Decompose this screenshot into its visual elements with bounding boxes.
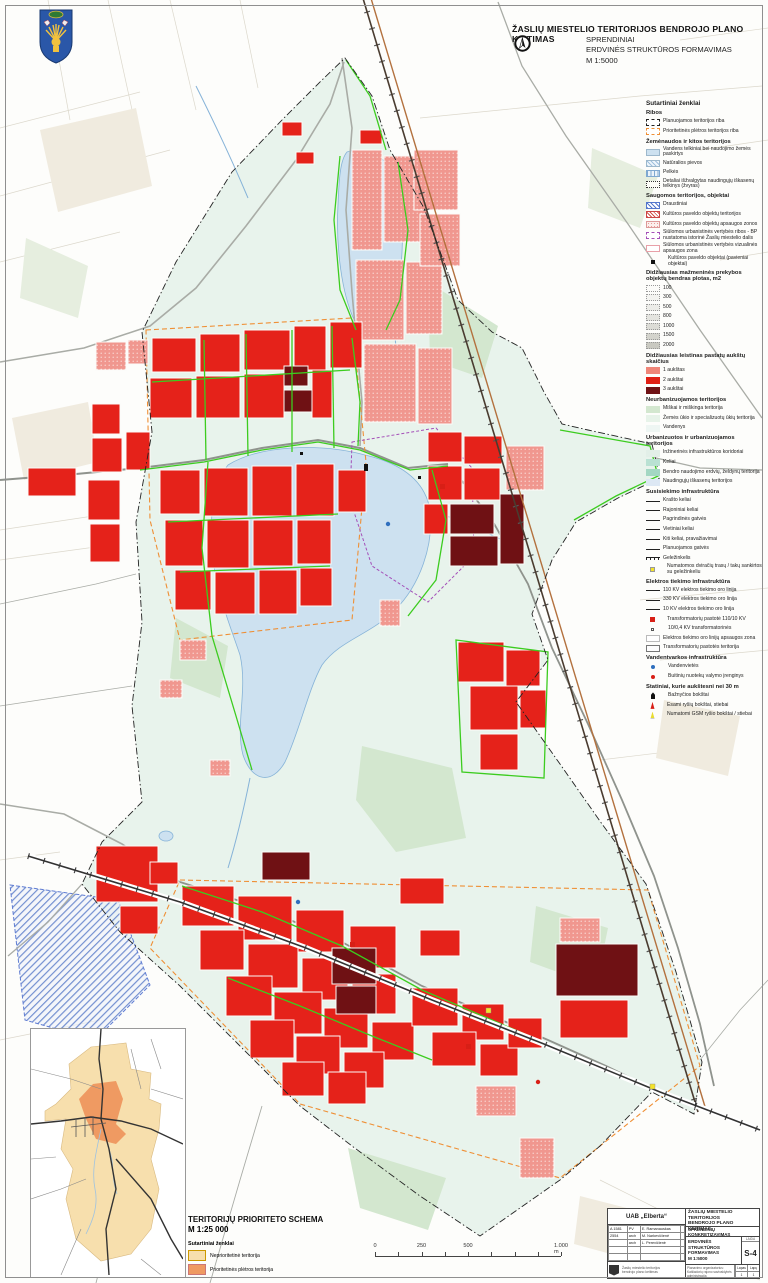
m2 g1-swatch — [646, 285, 660, 292]
legend-item-label: Kiti keliai, pravažiavimai — [663, 537, 762, 543]
inset-map-canvas — [31, 1029, 183, 1275]
legend-item-label: Prioritetinės plėtros teritorijos riba — [663, 129, 762, 135]
legend-item-label: Numatomos dviračių trasų / takų sankirto… — [667, 564, 762, 575]
zasliai-coat-of-arms — [38, 8, 74, 64]
nonpriority-swatch — [188, 1250, 206, 1261]
legend-item: Siūlomos urbanistinės vertybės ribos - B… — [646, 230, 762, 241]
legend-item-label: 1 aukštas — [663, 368, 762, 374]
sq-black-swatch — [651, 260, 655, 264]
legend-section-title: Didžiausias leistinas pastatų aukštų ska… — [646, 353, 762, 365]
line line-local-swatch — [646, 529, 660, 530]
outline-pink-swatch — [646, 245, 660, 252]
legend-item-label: Transformatorių pastotės teritorija — [663, 645, 762, 651]
dash-black-swatch — [646, 119, 660, 126]
subtitle-line-1: SPRENDINIAI — [586, 35, 732, 45]
legend-item-label: Bendro naudojimo erdvių, želdynų teritor… — [663, 470, 762, 476]
legend-item: Draustiniai — [646, 201, 762, 209]
staff-row: 2554archM. Narkevičienė — [609, 1233, 685, 1240]
legend-item-label: Bažnyčios bokštai — [668, 693, 762, 699]
legend-item: Pelkės — [646, 169, 762, 177]
legend-item: 2000 — [646, 342, 762, 350]
legend-item: 10 KV elektros tiekimo oro linija — [646, 606, 762, 614]
drawing-name: ERDVINĖS STRUKTŪROS FORMAVIMAS M 1:5000 — [686, 1237, 741, 1264]
fill-minerals-swatch — [646, 479, 660, 486]
m2 g5-swatch — [646, 323, 660, 330]
organizer: Planavimo organizatorius: Kaišiadorių ra… — [686, 1265, 735, 1278]
legend-title: Sutartiniai ženklai — [646, 100, 762, 107]
scale-bar: 02505001.000 m — [375, 1243, 561, 1257]
inset-legend-label: Neprioritetinė teritorija — [210, 1253, 260, 1259]
subtitle-line-3: M 1:5000 — [586, 56, 732, 66]
legend-item: Rajoniniai keliai — [646, 507, 762, 515]
legend-item-label: Kultūros paveldo objektų apsaugos zonos — [663, 222, 762, 228]
legend-item: Esami ryšių bokštai, stiebai — [646, 701, 762, 709]
sheet-number: S-4 — [742, 1242, 759, 1264]
inset-legend-title: Sutartiniai ženklai — [188, 1241, 338, 1247]
legend-item-label: Siūlomos urbanistinės vertybės vizualinė… — [663, 243, 762, 254]
scale-label: 0 — [373, 1243, 376, 1249]
legend-item-label: Rajoniniai keliai — [663, 508, 762, 514]
sq-yellow-swatch — [650, 567, 655, 572]
fill-water-swatch — [646, 149, 660, 156]
line line-main-swatch — [646, 520, 660, 521]
ic-church-swatch — [651, 692, 655, 699]
legend-item: 330 KV elektros tiekimo oro linija — [646, 596, 762, 604]
north-arrow-icon — [514, 35, 531, 52]
legend: Sutartiniai ženklai RibosPlanuojamos ter… — [646, 100, 762, 721]
dot-outline-swatch — [646, 181, 660, 188]
staff-row: archL. Perevičienė — [609, 1240, 685, 1247]
legend-item-label: 800 — [663, 314, 762, 320]
legend-item: Inžinerinės infrastruktūros koridoriai — [646, 449, 762, 457]
red-3-swatch — [646, 387, 660, 394]
inset-legend-item: Prioritetinės plėtros teritorija — [188, 1264, 338, 1275]
legend-item: 800 — [646, 313, 762, 321]
legend-item: Pagrindinės gatvės — [646, 516, 762, 524]
legend-item-label: Pagrindinės gatvės — [663, 517, 762, 523]
hatch-blue-swatch — [646, 202, 660, 209]
legend-item-label: 1000 — [663, 324, 762, 330]
legend-item: Buitinių nuotekų valymo įrenginys — [646, 673, 762, 681]
zone-outline-swatch — [646, 645, 660, 652]
legend-item: Detaliai išžvalgytas naudingųjų iškasenų… — [646, 179, 762, 190]
legend-section-title: Statiniai, kurie aukštesni nei 30 m — [646, 684, 762, 690]
fill-roads-swatch — [646, 459, 660, 466]
inset-legend-item: Neprioritetinė teritorija — [188, 1250, 338, 1261]
legend-item-label: 2000 — [663, 343, 762, 349]
wastewater-symbol — [536, 1080, 540, 1084]
legend-item-label: Draustiniai — [663, 202, 762, 208]
legend-item: Elektros tiekimo oro linijų apsaugos zon… — [646, 635, 762, 643]
green-oval — [49, 11, 63, 18]
legend-item-label: Numatomi GSM ryšio bokštai / stiebai — [667, 712, 762, 718]
line line-110-swatch — [646, 590, 660, 591]
legend-item-label: 1500 — [663, 333, 762, 339]
fill-forest-swatch — [646, 406, 660, 413]
staff-row — [609, 1247, 685, 1254]
legend-item: Planuojamos gatvės — [646, 545, 762, 553]
hatch-blue-lt-swatch — [646, 160, 660, 167]
fill-waterpale-swatch — [646, 425, 660, 432]
legend-item: Natūralios pievos — [646, 160, 762, 168]
legend-item-label: Vandens telkiniai bei naudojimo žemės pa… — [663, 147, 762, 158]
legend-item-label: Pelkės — [663, 170, 762, 176]
legend-item: Vandenvietės — [646, 663, 762, 671]
legend-item-label: Vietiniai keliai — [663, 527, 762, 533]
line line-planned-swatch — [646, 549, 660, 550]
legend-item: Numatomos dviračių trasų / takų sankirto… — [646, 564, 762, 575]
legend-item: Transformatorių pastotė 110/10 KV — [646, 615, 762, 623]
legend-item: Miškai ir miškinga teritorija — [646, 405, 762, 413]
header: ŽASLIŲ MIESTELIO TERITORIJOS BENDROJO PL… — [512, 24, 762, 44]
legend-item: 1500 — [646, 332, 762, 340]
legend-item-label: 110 KV elektros tiekimo oro linija — [663, 588, 762, 594]
page-cell: 1 — [735, 1272, 747, 1279]
legend-section-title: Vandentvarkos infrastruktūra — [646, 655, 762, 661]
legend-item-label: 500 — [663, 305, 762, 311]
footer-line-2: bendrojo plano keitimas — [622, 1270, 660, 1274]
legend-item-label: Transformatorių pastotė 110/10 KV — [667, 617, 762, 623]
legend-section-title: Žemėnaudos ir kitos teritorijos — [646, 139, 762, 145]
legend-item: Žemės ūkio ir specializuotų ūkių teritor… — [646, 415, 762, 423]
legend-item: Keliai — [646, 459, 762, 467]
legend-item-label: Siūlomos urbanistinės vertybės ribos - B… — [663, 230, 762, 241]
ic-tower-red-swatch — [650, 702, 655, 709]
legend-section-title: Neurbanizuojamos teritorijos — [646, 397, 762, 403]
legend-item-label: Vandenvietės — [668, 664, 762, 670]
legend-item: 10/0,4 KV transformatorinės — [646, 625, 762, 633]
hatch-red-swatch — [646, 211, 660, 218]
legend-item: 300 — [646, 294, 762, 302]
legend-item-label: Kultūros paveldo objektų teritorijos — [663, 212, 762, 218]
project-stage: SPRENDINIŲ KONKRETIZAVIMAS — [686, 1227, 759, 1237]
line line-330-swatch — [646, 600, 660, 601]
company-name: UAB „Elberta“ — [608, 1209, 685, 1225]
legend-item-label: 330 KV elektros tiekimo oro linija — [663, 597, 762, 603]
title-block-footer: Žaslių miestelio teritorijos bendrojo pl… — [608, 1262, 685, 1278]
legend-section-title: Saugomos teritorijos, objektai — [646, 193, 762, 199]
page-counter: LapasLapų11 — [735, 1265, 759, 1278]
legend-item: Bendro naudojimo erdvių, želdynų teritor… — [646, 469, 762, 477]
project-line-1: ŽASLIŲ MIESTELIO TERITORIJOS — [688, 1210, 757, 1221]
legend-item: Naudingųjų iškasenų teritorijos — [646, 478, 762, 486]
m2 g2-swatch — [646, 294, 660, 301]
drawing-line-1: ERDVINĖS STRUKTŪROS — [688, 1239, 739, 1250]
fill-agri-swatch — [646, 415, 660, 422]
legend-item-label: Kultūros paveldo objektai (pavieniai obj… — [668, 256, 762, 267]
line-rail-swatch — [646, 557, 660, 560]
map-sheet: { "header": { "title": "ŽASLIŲ MIESTELIO… — [0, 0, 768, 1283]
sq-small-swatch — [651, 628, 654, 631]
scale-label: 250 — [417, 1243, 426, 1249]
legend-item-label: Planuojamos teritorijos riba — [663, 119, 762, 125]
legend-item: Planuojamos teritorijos riba — [646, 118, 762, 126]
legend-body: RibosPlanuojamos teritorijos ribaPriorit… — [646, 110, 762, 719]
legend-item-label: 2 aukštai — [663, 378, 762, 384]
fill-greens-swatch — [646, 469, 660, 476]
sq-red-swatch — [650, 617, 655, 622]
staff-row: A 1581PVE. Ramanauskas — [609, 1226, 685, 1233]
zone-blank-swatch — [646, 635, 660, 642]
staff-row — [609, 1254, 685, 1261]
project-name: ŽASLIŲ MIESTELIO TERITORIJOS BENDROJO PL… — [686, 1209, 759, 1227]
legend-item-label: Žemės ūkio ir specializuotų ūkių teritor… — [663, 416, 762, 422]
legend-item-label: 10/0,4 KV transformatorinės — [668, 626, 762, 632]
organizer-line-2: Kaišiadorių rajono savivaldybės administ… — [687, 1270, 733, 1278]
church-tower-symbol — [364, 464, 368, 471]
dot-red-swatch — [651, 675, 655, 679]
legend-item-label: Detaliai išžvalgytas naudingųjų iškasenų… — [663, 179, 762, 190]
subtitle-line-2: ERDVINĖS STRUKTŪROS FORMAVIMAS — [586, 45, 732, 55]
subtitle: SPRENDINIAI ERDVINĖS STRUKTŪROS FORMAVIM… — [586, 35, 732, 66]
legend-item-label: Esami ryšių bokštai, stiebai — [667, 703, 762, 709]
legend-item-label: 100 — [663, 286, 762, 292]
inset-title: TERITORIJŲ PRIORITETO SCHEMA — [188, 1215, 338, 1225]
m2 g4-swatch — [646, 314, 660, 321]
legend-item-label: Miškai ir miškinga teritorija — [663, 406, 762, 412]
legend-item: Prioritetinės plėtros teritorijos riba — [646, 128, 762, 136]
legend-item: Vandens telkiniai bei naudojimo žemės pa… — [646, 147, 762, 158]
legend-item: Vandenys — [646, 424, 762, 432]
company-logo — [609, 1265, 619, 1276]
dots-pink-swatch — [646, 221, 660, 228]
legend-item: Bažnyčios bokštai — [646, 692, 762, 700]
legend-item-label: Vandenys — [663, 425, 762, 431]
dash-purple-swatch — [646, 232, 660, 239]
inset-scale: M 1:25 000 — [188, 1225, 338, 1234]
staff-table: A 1581PVE. Ramanauskas2554archM. Narkevi… — [608, 1225, 685, 1262]
legend-item: Geležinkelis — [646, 555, 762, 563]
legend-item-label: Naudingųjų iškasenų teritorijos — [663, 479, 762, 485]
legend-item: 100 — [646, 284, 762, 292]
page-cell: 1 — [747, 1272, 759, 1279]
title-block: UAB „Elberta“ A 1581PVE. Ramanauskas2554… — [607, 1208, 760, 1279]
legend-item-label: 10 KV elektros tiekimo oro linija — [663, 607, 762, 613]
sheet-number-box: LAIDA S-4 — [741, 1237, 759, 1264]
legend-item-label: Krašto keliai — [663, 498, 762, 504]
drawing-line-3: M 1:5000 — [688, 1256, 739, 1262]
legend-section-title: Urbanizuotos ir urbanizuojamos teritorij… — [646, 435, 762, 447]
legend-item-label: Planuojamos gatvės — [663, 546, 762, 552]
line line-10-swatch — [646, 609, 660, 610]
legend-item-label: Buitinių nuotekų valymo įrenginys — [668, 674, 762, 680]
legend-item-label: Natūralios pievos — [663, 161, 762, 167]
legend-item: Kiti keliai, pravažiavimai — [646, 535, 762, 543]
legend-item: 2 aukštai — [646, 377, 762, 385]
fill-infra-swatch — [646, 450, 660, 457]
legend-item-label: Elektros tiekimo oro linijų apsaugos zon… — [663, 636, 762, 642]
legend-section-title: Susisiekimo infrastruktūra — [646, 489, 762, 495]
legend-item: Transformatorių pastotės teritorija — [646, 644, 762, 652]
line line-med-swatch — [646, 510, 660, 511]
priority-swatch — [188, 1264, 206, 1275]
legend-item: 1 aukštas — [646, 367, 762, 375]
legend-section-title: Didžiausias mažmeninės prekybos objektų … — [646, 270, 762, 282]
legend-item: 110 KV elektros tiekimo oro linija — [646, 587, 762, 595]
legend-item-label: Geležinkelis — [663, 556, 762, 562]
line line-thick-swatch — [646, 501, 660, 502]
legend-item: Siūlomos urbanistinės vertybės vizualinė… — [646, 243, 762, 254]
legend-item: Vietiniai keliai — [646, 526, 762, 534]
legend-item: Kultūros paveldo objektų teritorijos — [646, 211, 762, 219]
legend-item: Kultūros paveldo objektai (pavieniai obj… — [646, 256, 762, 267]
legend-section-title: Ribos — [646, 110, 762, 116]
inset-info: TERITORIJŲ PRIORITETO SCHEMA M 1:25 000 … — [188, 1215, 338, 1275]
water-intake-symbol — [386, 522, 390, 526]
m2 g7-swatch — [646, 342, 660, 349]
inset-map — [30, 1028, 186, 1278]
scale-label: 500 — [463, 1243, 472, 1249]
legend-section-title: Elektros tiekimo infrastruktūra — [646, 579, 762, 585]
m2 g6-swatch — [646, 333, 660, 340]
dot-blue-swatch — [651, 665, 655, 669]
red-1-swatch — [646, 367, 660, 374]
bike-rail-crossing — [486, 1008, 491, 1013]
m2 g3-swatch — [646, 304, 660, 311]
legend-item: Kultūros paveldo objektų apsaugos zonos — [646, 220, 762, 228]
legend-item: 500 — [646, 304, 762, 312]
legend-item-label: Inžinerinės infrastruktūros koridoriai — [663, 450, 762, 456]
red-2-swatch — [646, 377, 660, 384]
legend-item-label: 3 aukštai — [663, 387, 762, 393]
dash-orange-swatch — [646, 128, 660, 135]
legend-item: Krašto keliai — [646, 497, 762, 505]
inset-legend-label: Prioritetinės plėtros teritorija — [210, 1267, 273, 1273]
legend-item: Numatomi GSM ryšio bokštai / stiebai — [646, 711, 762, 719]
stripe-blue-swatch — [646, 170, 660, 177]
legend-item: 3 aukštai — [646, 386, 762, 394]
transformer-symbol — [440, 484, 445, 489]
ic-tower-yellow-swatch — [650, 712, 655, 719]
legend-item-label: 300 — [663, 295, 762, 301]
scale-bar-labels: 02505001.000 m — [375, 1243, 561, 1251]
scale-bar-line — [375, 1251, 561, 1257]
legend-item-label: Keliai — [663, 460, 762, 466]
line line-other-swatch — [646, 539, 660, 540]
legend-item: 1000 — [646, 323, 762, 331]
